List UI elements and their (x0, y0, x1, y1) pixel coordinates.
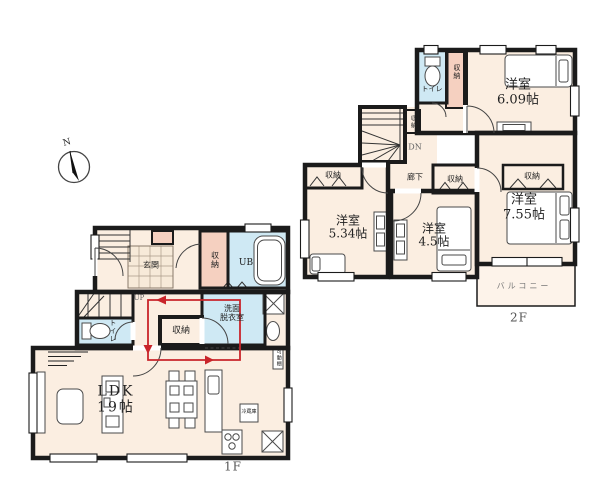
floorplan-drawing (0, 0, 600, 493)
cabinet-w-icon (374, 212, 387, 251)
floor1-label: 1F (224, 460, 242, 473)
bedroom-se-label: 洋室7.55帖 (503, 193, 545, 222)
bathtub-icon (254, 236, 285, 285)
toilet1-label: トイレ (108, 319, 116, 343)
toilet2-fixture-icon (425, 57, 440, 86)
sofa-icon (57, 389, 83, 424)
bedroom-w-label: 洋室5.34帖 (329, 215, 368, 242)
bed-w-icon (310, 254, 345, 274)
bedroom-ne-label: 洋室6.09帖 (497, 78, 539, 107)
floor2-label: 2F (510, 311, 528, 324)
bedroom-se-storage-label: 収納 (524, 173, 540, 182)
stairs-storage-label: 収納 (409, 115, 416, 129)
fridge-label: 冷蔵庫 (241, 410, 256, 416)
washbasin-icon (267, 322, 280, 341)
toilet2-storage-label: 収納 (452, 64, 460, 80)
bedroom-c-storage-label: 収納 (447, 176, 463, 185)
toilet2-label: トイレ (422, 86, 443, 94)
genkan-label: 玄関 (143, 262, 159, 271)
floorplan-page: N 玄関 収納 UB UP トイレ 収納 洗面脱衣室 LDK19帖 冷蔵庫 可動… (0, 0, 600, 493)
cabinet-c-icon (394, 220, 407, 260)
stairs-up-label: UP (134, 295, 145, 303)
tv-board-icon (37, 372, 45, 433)
washroom-label: 洗面脱衣室 (220, 305, 244, 323)
compass-icon (59, 151, 90, 183)
unit-bath-label: UB (239, 258, 253, 268)
hall-storage-label: 収納 (172, 326, 190, 336)
ldk-label: LDK19帖 (97, 384, 135, 415)
stairs-down-label: DN (408, 144, 421, 153)
bedroom-c-label: 洋室4.5帖 (418, 223, 449, 250)
toilet1-fixture-icon (82, 323, 110, 339)
balcony-label: バルコニー (497, 283, 552, 292)
entrance-storage-label: 収納 (210, 251, 219, 269)
shelf-label: 可動棚 (275, 349, 281, 367)
hallway-label: 廊下 (407, 174, 423, 183)
bedroom-w-storage-label: 収納 (325, 172, 341, 181)
floor-hatch-icon (262, 431, 283, 452)
